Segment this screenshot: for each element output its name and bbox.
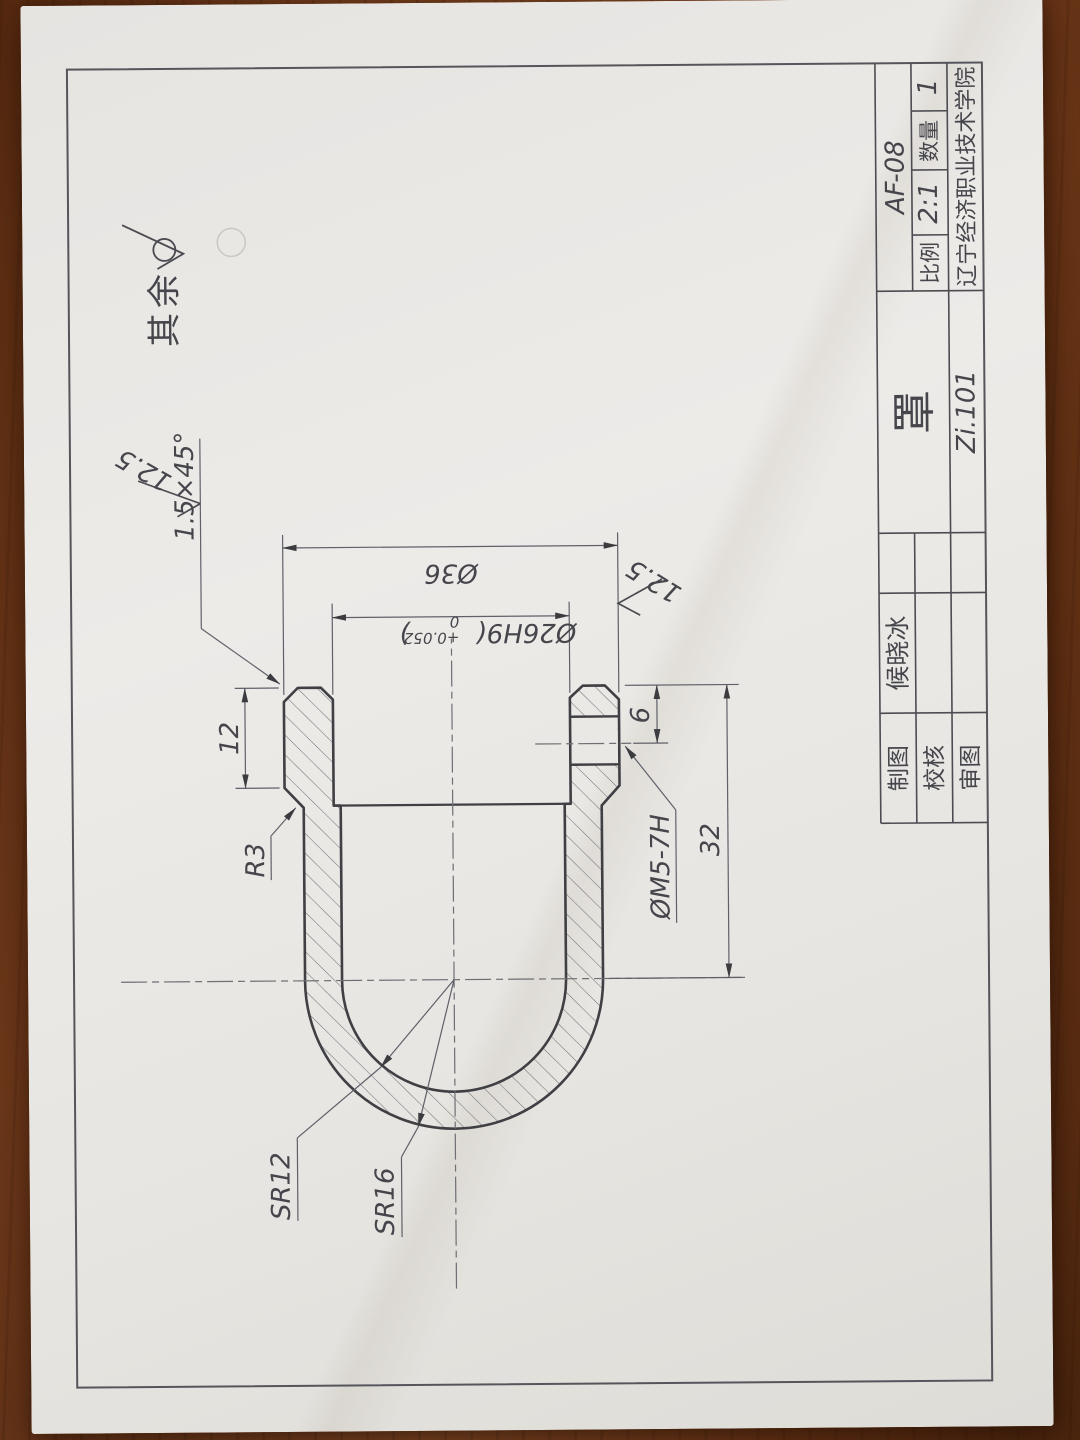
general-roughness-note: 其余 [122,225,185,347]
roughness-value-2: 12.5 [622,553,687,609]
roughness-circle-symbol-icon [122,225,183,269]
dim-od-text: Ø36 [424,557,479,587]
svg-text:Ø26H9(: Ø26H9( [475,617,578,648]
centerlines [118,636,747,1291]
title-block: 制图 候晓冰 校核 审图 罩 Zi.101 AF-08 比例 2:1 数量 1 … [875,62,988,823]
chamfer-note-text: 1.5×45° [170,431,201,540]
part-name: 罩 [889,390,940,434]
thread-note-text: ØM5-7H [646,814,677,920]
review-label: 审图 [958,744,984,790]
engineering-drawing: 其余 [21,2,1052,1430]
dim-fillet-text: R3 [241,843,271,878]
qty-value: 1 [913,79,943,96]
part-section-view [118,636,747,1291]
paper-sheet: 其余 [20,0,1053,1434]
svg-text:): ) [399,618,411,648]
scale-label: 比例 [918,242,942,284]
axis-centerline [451,639,456,1289]
m5-threaded-hole [570,716,619,764]
drawing-number: Zi.101 [951,370,982,454]
roughness-value-1: 12.5 [111,442,176,497]
check-label: 校核 [922,745,948,791]
drawing-landscape-rotated: 其余 [21,2,1052,1430]
drawn-label: 制图 [886,745,912,791]
dim-collar-length-text: 12 [215,722,245,755]
organization-name: 辽宁经济职业技术学院 [954,67,981,287]
dim-sphere-inner-text: SR12 [266,1152,297,1220]
photo-of-engineering-drawing: { "drawing": { "surface_note": "其余", "ch… [0,0,1080,1440]
dim-sphere-outer-text: SR16 [371,1167,402,1235]
qty-label: 数量 [917,120,941,162]
scale-value: 2:1 [914,182,944,224]
drawing-frame [67,62,992,1387]
drawing-code: AF-08 [880,140,911,216]
surface-note-text: 其余 [144,269,185,347]
roughness-symbols [138,477,662,619]
pencil-ghost-mark [217,228,245,256]
dim-hole-offset-text: 6 [626,707,656,724]
svg-text:0: 0 [450,613,460,631]
dim-overall-text: 32 [696,823,726,856]
drawn-name: 候晓冰 [883,616,913,691]
